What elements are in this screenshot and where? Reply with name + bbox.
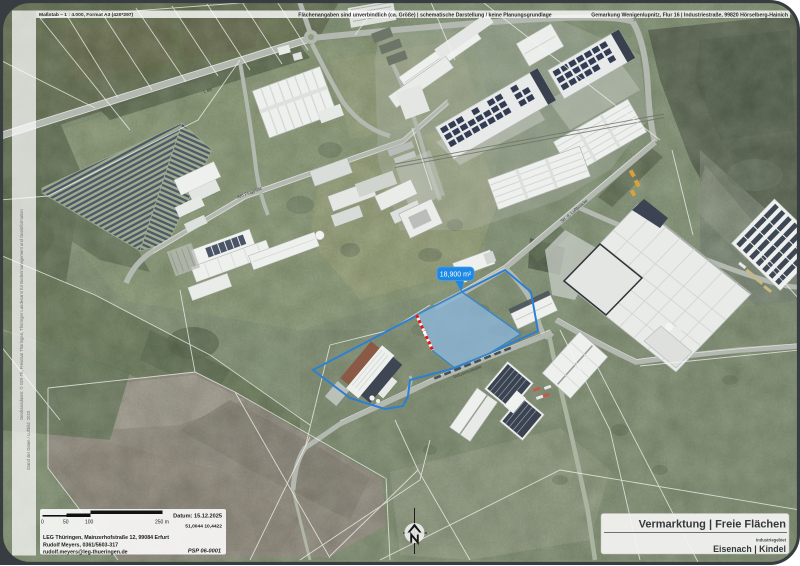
svg-text:Industriegebiet: Industriegebiet: [756, 538, 787, 543]
svg-text:Rudolf Meyers, 0361/5603-317: Rudolf Meyers, 0361/5603-317: [43, 543, 118, 549]
svg-text:250 m: 250 m: [155, 520, 169, 526]
svg-text:50: 50: [63, 520, 69, 526]
svg-text:Maßstab – 1 : 4.000, Format A3: Maßstab – 1 : 4.000, Format A3 (420*297): [39, 12, 134, 18]
svg-text:rudolf.meyers@leg-thueringen.d: rudolf.meyers@leg-thueringen.de: [43, 550, 128, 556]
svg-text:Eisenach | Kindel: Eisenach | Kindel: [713, 544, 786, 554]
svg-text:100: 100: [85, 520, 94, 526]
svg-text:51,0044 10,4422: 51,0044 10,4422: [185, 524, 222, 530]
svg-text:LEG Thüringen, Mainzerhofstraß: LEG Thüringen, Mainzerhofstraße 12, 9908…: [43, 535, 169, 541]
svg-text:Datum: 15.12.2025: Datum: 15.12.2025: [173, 514, 222, 520]
svg-text:PSP 06-0001: PSP 06-0001: [188, 549, 221, 555]
svg-text:Gemarkung Wenigenlupnitz, Flur: Gemarkung Wenigenlupnitz, Flur 16 | Indu…: [591, 12, 788, 18]
svg-text:Stand der Daten / Luftbild: 20: Stand der Daten / Luftbild: 2023: [26, 410, 31, 470]
svg-text:0: 0: [41, 520, 44, 526]
svg-text:Flächenangaben sind unverbindl: Flächenangaben sind unverbindlich (ca. G…: [298, 12, 552, 18]
svg-text:Vermarktung | Freie Flächen: Vermarktung | Freie Flächen: [639, 519, 787, 531]
svg-text:Geobasisdaten: © GDI-Th, Freis: Geobasisdaten: © GDI-Th, Freistaat Thüri…: [19, 209, 24, 420]
svg-text:18,900 m²: 18,900 m²: [440, 272, 472, 279]
